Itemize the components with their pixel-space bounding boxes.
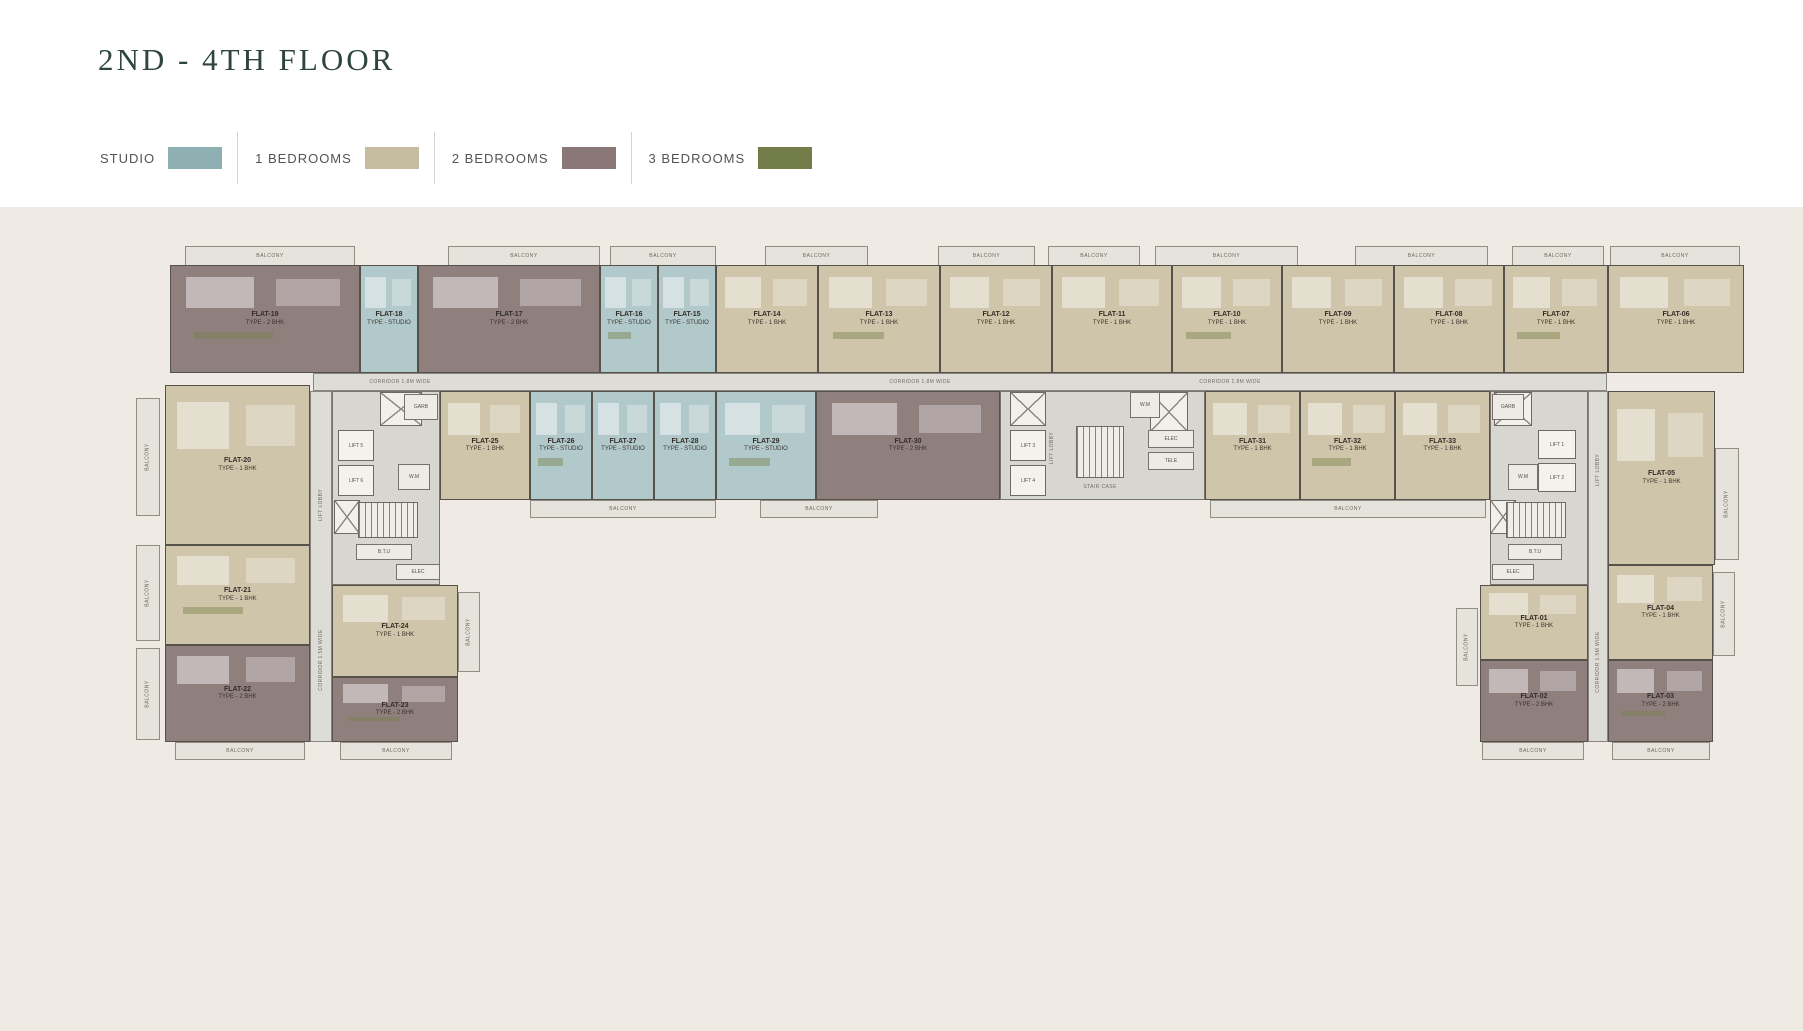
flat-number: FLAT-12 [982,311,1009,320]
flat-type: TYPE - 1 BHK [1537,320,1575,327]
balcony: BALCONY [1610,246,1740,266]
flat-number: FLAT-32 [1334,438,1361,447]
flat-22: FLAT-22TYPE - 2 BHK [165,645,310,742]
room-hint [1062,277,1104,309]
room-hint [1562,279,1597,307]
stair-case-label: STAIR CASE [1083,484,1116,490]
flat-02: FLAT-02TYPE - 2 BHK [1480,660,1588,742]
balcony: BALCONY [185,246,355,266]
balcony-label: BALCONY [1519,748,1546,754]
flat-number: FLAT-15 [673,311,700,320]
balcony: BALCONY [1715,448,1739,560]
balcony-label: BALCONY [1464,633,1470,660]
lift-lobby-label: LIFT LOBBY [318,489,324,521]
lift-1: LIFT 1 [1538,430,1576,459]
room-label: W.M [1140,402,1150,408]
lift-label: LIFT 6 [349,478,363,484]
room-hint [177,556,228,585]
flat-type: TYPE - 2 BHK [490,320,528,327]
flat-type: TYPE - STUDIO [601,446,645,453]
flat-type: TYPE - 1 BHK [218,596,256,603]
flat-type: TYPE - 1 BHK [218,466,256,473]
flat-type: TYPE - 1 BHK [1641,613,1679,620]
room-hint [1182,277,1221,309]
room-label: W.M [409,474,419,480]
room-hint [1448,405,1480,433]
room-hint [343,595,388,622]
room-hint [186,277,254,309]
garb: GARB [404,394,438,420]
flat-type: TYPE - 2 BHK [1641,702,1679,709]
room-hint [1667,577,1702,601]
b-t-u: B.T.U [356,544,412,560]
room-hint [343,684,388,703]
corridor-1-8m-wide-label: CORRIDOR 1.8M WIDE [889,379,950,385]
balcony-label: BALCONY [609,506,636,512]
balcony: BALCONY [1355,246,1488,266]
staircase [358,502,418,538]
lift-lobby-label: LIFT LOBBY [1595,454,1601,486]
flat-type: TYPE - 1 BHK [1642,479,1680,486]
lift-5: LIFT 5 [338,430,374,461]
room-hint [1308,403,1341,435]
flat-06: FLAT-06TYPE - 1 BHK [1608,265,1744,373]
room-hint [276,279,340,307]
flat-25: FLAT-25TYPE - 1 BHK [440,391,530,500]
room-hint [1489,593,1527,615]
room-hint [520,279,581,307]
flat-27: FLAT-27TYPE - STUDIO [592,391,654,500]
lift-4: LIFT 4 [1010,465,1046,496]
room-hint [1213,403,1246,435]
flat-type: TYPE - 1 BHK [1430,320,1468,327]
flat-number: FLAT-27 [609,438,636,447]
flat-19: FLAT-19TYPE - 2 BHK [170,265,360,373]
flat-number: FLAT-31 [1239,438,1266,447]
corridor [313,373,1607,391]
flat-type: TYPE - 2 BHK [218,694,256,701]
room-hint [1617,409,1655,461]
balcony-label: BALCONY [1544,253,1571,259]
balcony: BALCONY [1612,742,1710,760]
flat-number: FLAT-16 [615,311,642,320]
corridor-1-5m-wide-label: CORRIDOR 1.5M WIDE [318,629,324,690]
flat-number: FLAT-03 [1647,693,1674,702]
room-hint [246,657,295,682]
tele: TELE [1148,452,1194,470]
flat-number: FLAT-22 [224,686,251,695]
balcony-label: BALCONY [1647,748,1674,754]
balcony: BALCONY [458,592,480,672]
balcony-label: BALCONY [803,253,830,259]
room-hint [660,403,682,435]
staircase [1506,502,1566,538]
room-hint [833,332,883,339]
lift-label: LIFT 1 [1550,442,1564,448]
flat-type: TYPE - 1 BHK [860,320,898,327]
room-hint [605,277,625,309]
balcony-label: BALCONY [145,579,151,606]
flat-type: TYPE - STUDIO [539,446,583,453]
flat-14: FLAT-14TYPE - 1 BHK [716,265,818,373]
room-hint [536,403,558,435]
room-hint [1489,669,1527,693]
staircase [1076,426,1124,478]
corridor-1-8m-wide-label: CORRIDOR 1.8M WIDE [369,379,430,385]
flat-number: FLAT-04 [1647,605,1674,614]
room-hint [402,597,444,620]
flat-31: FLAT-31TYPE - 1 BHK [1205,391,1300,500]
room-hint [1684,279,1730,307]
flat-type: TYPE - STUDIO [744,446,788,453]
room-hint [448,403,480,435]
elec: ELEC [1148,430,1194,448]
flat-16: FLAT-16TYPE - STUDIO [600,265,658,373]
flat-03: FLAT-03TYPE - 2 BHK [1608,660,1713,742]
room-hint [433,277,498,309]
flat-number: FLAT-11 [1099,311,1126,320]
lift-6: LIFT 6 [338,465,374,496]
room-hint [832,403,898,435]
corridor-1-8m-wide-label: CORRIDOR 1.8M WIDE [1199,379,1260,385]
room-hint [1617,575,1654,603]
balcony-label: BALCONY [1080,253,1107,259]
lift-label: LIFT 5 [349,443,363,449]
w-m: W.M [1130,392,1160,418]
flat-type: TYPE - STUDIO [663,446,707,453]
room-hint [1292,277,1332,309]
room-label: ELEC [1506,569,1519,575]
flat-08: FLAT-08TYPE - 1 BHK [1394,265,1504,373]
room-hint [365,277,385,309]
flat-number: FLAT-28 [671,438,698,447]
flat-number: FLAT-02 [1520,693,1547,702]
room-hint [1119,279,1159,307]
balcony-label: BALCONY [1334,506,1361,512]
room-label: ELEC [411,569,424,575]
room-hint [490,405,520,433]
room-hint [565,405,585,433]
room-hint [1404,277,1443,309]
flat-type: TYPE - 1 BHK [376,632,414,639]
room-label: GARB [414,404,428,410]
room-hint [538,458,563,465]
room-hint [1540,671,1576,692]
room-hint [919,405,981,433]
flat-number: FLAT-33 [1429,438,1456,447]
room-hint [1617,669,1654,693]
balcony: BALCONY [1482,742,1584,760]
flat-number: FLAT-10 [1213,311,1240,320]
balcony: BALCONY [1210,500,1486,518]
room-hint [177,402,228,449]
balcony-label: BALCONY [510,253,537,259]
flat-number: FLAT-17 [495,311,522,320]
room-hint [402,686,444,702]
room-hint [725,403,760,435]
balcony: BALCONY [1713,572,1735,656]
room-hint [598,403,620,435]
room-hint [392,279,411,307]
flat-type: TYPE - 1 BHK [1515,623,1553,630]
room-hint [1667,671,1702,692]
room-hint [1668,413,1704,458]
room-hint [689,405,709,433]
flat-18: FLAT-18TYPE - STUDIO [360,265,418,373]
flat-number: FLAT-09 [1324,311,1351,320]
flat-type: TYPE - 1 BHK [1319,320,1357,327]
room-hint [348,717,400,721]
room-hint [773,279,807,307]
room-hint [1455,279,1492,307]
balcony: BALCONY [136,648,160,740]
room-hint [1312,458,1351,465]
flat-23: FLAT-23TYPE - 2 BHK [332,677,458,742]
lift-2: LIFT 2 [1538,463,1576,492]
w-m: W.M [398,464,430,490]
flat-number: FLAT-25 [471,438,498,447]
room-label: B.T.U [378,549,390,555]
flat-04: FLAT-04TYPE - 1 BHK [1608,565,1713,660]
balcony-label: BALCONY [805,506,832,512]
lift-3: LIFT 3 [1010,430,1046,461]
balcony-label: BALCONY [1721,600,1727,627]
room-hint [194,332,273,339]
room-label: W.M [1518,474,1528,480]
balcony: BALCONY [136,545,160,641]
flat-number: FLAT-30 [894,438,921,447]
balcony: BALCONY [610,246,716,266]
flat-32: FLAT-32TYPE - 1 BHK [1300,391,1395,500]
flat-type: TYPE - 1 BHK [977,320,1015,327]
balcony: BALCONY [136,398,160,516]
flat-number: FLAT-01 [1520,615,1547,624]
flat-number: FLAT-07 [1542,311,1569,320]
room-hint [1353,405,1385,433]
room-label: B.T.U [1529,549,1541,555]
balcony-label: BALCONY [1213,253,1240,259]
room-label: GARB [1501,404,1515,410]
balcony: BALCONY [1456,608,1478,686]
flat-type: TYPE - 2 BHK [376,710,414,717]
flat-number: FLAT-14 [753,311,780,320]
room-hint [183,607,243,614]
lift-label: LIFT 3 [1021,443,1035,449]
room-hint [772,405,805,433]
w-m: W.M [1508,464,1538,490]
flat-number: FLAT-29 [752,438,779,447]
room-hint [829,277,872,309]
lift-lobby-label: LIFT LOBBY [1049,432,1055,464]
flat-10: FLAT-10TYPE - 1 BHK [1172,265,1282,373]
flat-number: FLAT-23 [381,702,408,711]
flat-type: TYPE - STUDIO [607,320,651,327]
room-hint [1620,277,1668,309]
room-hint [177,656,228,685]
room-hint [632,279,651,307]
elec: ELEC [396,564,440,580]
flat-number: FLAT-24 [381,623,408,632]
lift-label: LIFT 4 [1021,478,1035,484]
flat-05: FLAT-05TYPE - 1 BHK [1608,391,1715,565]
flat-number: FLAT-19 [251,311,278,320]
flat-21: FLAT-21TYPE - 1 BHK [165,545,310,645]
lift-shaft [334,500,360,534]
flat-number: FLAT-20 [224,457,251,466]
balcony: BALCONY [760,500,878,518]
garb: GARB [1492,394,1524,420]
flat-07: FLAT-07TYPE - 1 BHK [1504,265,1608,373]
room-hint [1258,405,1290,433]
room-hint [608,332,632,339]
room-hint [950,277,990,309]
room-hint [1403,403,1436,435]
flat-type: TYPE - STUDIO [367,320,411,327]
flat-number: FLAT-05 [1648,470,1675,479]
balcony-label: BALCONY [256,253,283,259]
flat-type: TYPE - 1 BHK [1233,446,1271,453]
flat-number: FLAT-18 [375,311,402,320]
balcony: BALCONY [1155,246,1298,266]
balcony-label: BALCONY [226,748,253,754]
flat-17: FLAT-17TYPE - 2 BHK [418,265,600,373]
flat-26: FLAT-26TYPE - STUDIO [530,391,592,500]
flat-type: TYPE - 1 BHK [1423,446,1461,453]
flat-13: FLAT-13TYPE - 1 BHK [818,265,940,373]
room-label: ELEC [1164,436,1177,442]
floor-plan: BALCONYBALCONYBALCONYBALCONYBALCONYBALCO… [0,0,1803,1031]
balcony: BALCONY [340,742,452,760]
room-hint [725,277,761,309]
balcony-label: BALCONY [649,253,676,259]
room-hint [663,277,683,309]
b-t-u: B.T.U [1508,544,1562,560]
balcony-label: BALCONY [382,748,409,754]
balcony-label: BALCONY [145,443,151,470]
balcony-label: BALCONY [466,618,472,645]
balcony-label: BALCONY [1408,253,1435,259]
flat-number: FLAT-13 [865,311,892,320]
balcony: BALCONY [765,246,868,266]
flat-33: FLAT-33TYPE - 1 BHK [1395,391,1490,500]
room-hint [729,458,770,465]
room-hint [886,279,927,307]
flat-29: FLAT-29TYPE - STUDIO [716,391,816,500]
room-hint [690,279,709,307]
flat-type: TYPE - 1 BHK [1657,320,1695,327]
balcony: BALCONY [530,500,716,518]
flat-type: TYPE - 1 BHK [1208,320,1246,327]
flat-type: TYPE - STUDIO [665,320,709,327]
flat-type: TYPE - 1 BHK [1328,446,1366,453]
room-hint [1513,277,1550,309]
flat-number: FLAT-08 [1435,311,1462,320]
balcony-label: BALCONY [1724,490,1730,517]
flat-type: TYPE - 1 BHK [466,446,504,453]
flat-28: FLAT-28TYPE - STUDIO [654,391,716,500]
flat-30: FLAT-30TYPE - 2 BHK [816,391,1000,500]
balcony: BALCONY [1048,246,1140,266]
balcony: BALCONY [448,246,600,266]
room-hint [1233,279,1270,307]
flat-number: FLAT-06 [1662,311,1689,320]
lift-label: LIFT 2 [1550,475,1564,481]
balcony-label: BALCONY [1661,253,1688,259]
balcony-label: BALCONY [973,253,1000,259]
room-hint [246,405,295,446]
flat-11: FLAT-11TYPE - 1 BHK [1052,265,1172,373]
flat-09: FLAT-09TYPE - 1 BHK [1282,265,1394,373]
balcony-label: BALCONY [145,680,151,707]
room-label: TELE [1165,458,1178,464]
lift-shaft [1010,392,1046,426]
flat-number: FLAT-26 [547,438,574,447]
flat-20: FLAT-20TYPE - 1 BHK [165,385,310,545]
balcony: BALCONY [938,246,1035,266]
room-hint [1345,279,1382,307]
flat-type: TYPE - 2 BHK [246,320,284,327]
flat-type: TYPE - 1 BHK [748,320,786,327]
room-hint [1003,279,1040,307]
room-hint [627,405,647,433]
flat-type: TYPE - 2 BHK [1515,702,1553,709]
room-hint [1186,332,1231,339]
room-hint [1540,595,1576,614]
flat-type: TYPE - 2 BHK [889,446,927,453]
elec: ELEC [1492,564,1534,580]
flat-type: TYPE - 1 BHK [1093,320,1131,327]
balcony: BALCONY [175,742,305,760]
flat-12: FLAT-12TYPE - 1 BHK [940,265,1052,373]
room-hint [246,558,295,583]
balcony: BALCONY [1512,246,1604,266]
flat-01: FLAT-01TYPE - 1 BHK [1480,585,1588,660]
corridor-1-5m-wide-label: CORRIDOR 1.5M WIDE [1595,631,1601,692]
room-hint [1517,332,1560,339]
flat-number: FLAT-21 [224,587,251,596]
room-hint [1621,711,1664,717]
flat-24: FLAT-24TYPE - 1 BHK [332,585,458,677]
flat-15: FLAT-15TYPE - STUDIO [658,265,716,373]
